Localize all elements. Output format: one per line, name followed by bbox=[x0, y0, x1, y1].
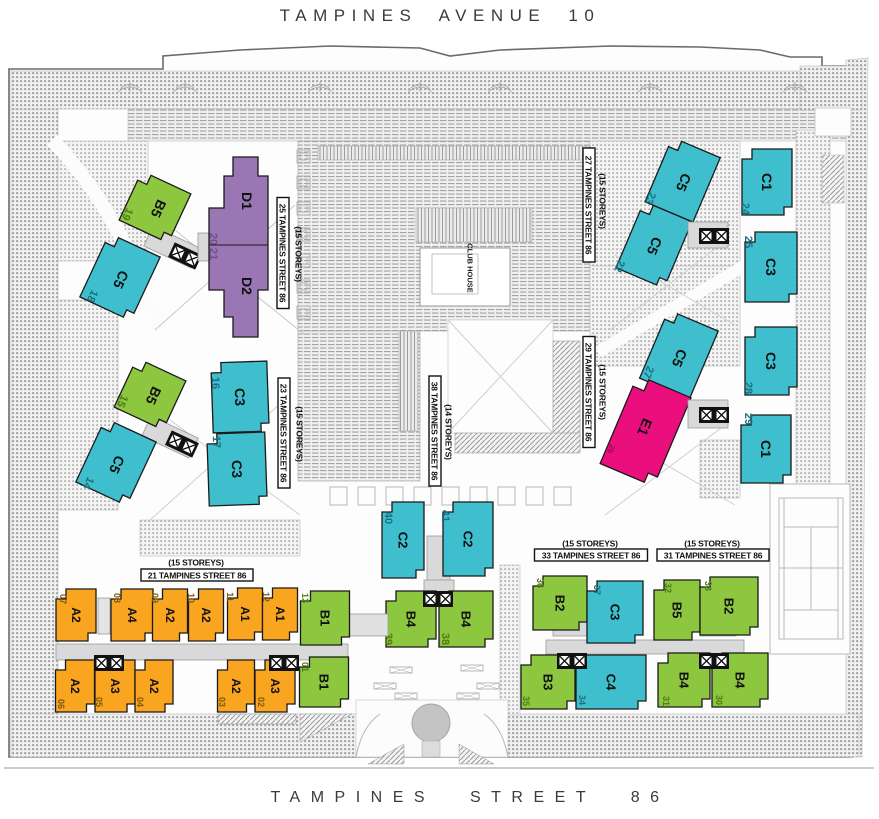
svg-text:41: 41 bbox=[439, 510, 451, 522]
svg-text:(15 STOREYS): (15 STOREYS) bbox=[295, 406, 305, 462]
svg-text:20: 20 bbox=[207, 233, 219, 245]
svg-text:25: 25 bbox=[742, 236, 754, 248]
svg-text:(15 STOREYS): (15 STOREYS) bbox=[294, 226, 304, 282]
svg-text:(15 STOREYS): (15 STOREYS) bbox=[598, 364, 608, 420]
svg-text:D1: D1 bbox=[239, 192, 255, 210]
svg-text:C3: C3 bbox=[229, 460, 246, 479]
svg-text:C1: C1 bbox=[758, 440, 774, 458]
svg-text:B2: B2 bbox=[553, 595, 568, 612]
svg-text:28: 28 bbox=[742, 382, 754, 394]
svg-text:30: 30 bbox=[714, 695, 724, 705]
svg-text:C3: C3 bbox=[608, 604, 623, 621]
svg-text:C3: C3 bbox=[763, 352, 779, 370]
svg-text:C2: C2 bbox=[396, 532, 411, 549]
svg-text:16: 16 bbox=[209, 377, 221, 390]
svg-text:TAMPINES STREET 86: TAMPINES STREET 86 bbox=[270, 789, 669, 806]
svg-text:B1: B1 bbox=[318, 610, 333, 627]
svg-text:36: 36 bbox=[535, 578, 545, 588]
svg-text:(15 STOREYS): (15 STOREYS) bbox=[168, 558, 224, 568]
svg-text:B5: B5 bbox=[670, 602, 685, 619]
svg-text:13: 13 bbox=[300, 593, 310, 603]
svg-text:07: 07 bbox=[58, 594, 68, 604]
svg-text:02: 02 bbox=[256, 697, 266, 707]
svg-text:27 TAMPINES STREET 86: 27 TAMPINES STREET 86 bbox=[584, 156, 594, 255]
svg-text:33: 33 bbox=[703, 581, 713, 591]
svg-text:05: 05 bbox=[94, 697, 104, 707]
svg-text:B4: B4 bbox=[733, 672, 748, 689]
svg-text:A2: A2 bbox=[68, 678, 82, 694]
svg-text:23 TAMPINES STREET 86: 23 TAMPINES STREET 86 bbox=[279, 384, 289, 483]
svg-text:35: 35 bbox=[521, 696, 531, 706]
svg-text:21 TAMPINES STREET 86: 21 TAMPINES STREET 86 bbox=[148, 571, 247, 581]
svg-text:CLUB HOUSE: CLUB HOUSE bbox=[466, 243, 475, 293]
svg-text:29 TAMPINES STREET 86: 29 TAMPINES STREET 86 bbox=[584, 343, 594, 442]
svg-text:08: 08 bbox=[112, 593, 122, 603]
svg-text:B1: B1 bbox=[317, 674, 332, 691]
svg-text:38 TAMPINES STREET 86: 38 TAMPINES STREET 86 bbox=[430, 382, 440, 481]
svg-text:04: 04 bbox=[135, 697, 145, 707]
svg-text:(15 STOREYS): (15 STOREYS) bbox=[598, 173, 608, 229]
svg-text:B4: B4 bbox=[459, 611, 474, 628]
svg-text:40: 40 bbox=[382, 512, 394, 524]
svg-text:B3: B3 bbox=[541, 674, 556, 691]
svg-text:(15 STOREYS): (15 STOREYS) bbox=[684, 539, 740, 549]
svg-text:A4: A4 bbox=[125, 607, 139, 623]
svg-text:A2: A2 bbox=[229, 678, 243, 694]
svg-text:A2: A2 bbox=[199, 607, 213, 623]
svg-text:09: 09 bbox=[150, 593, 160, 603]
svg-text:32: 32 bbox=[663, 583, 673, 593]
svg-text:33 TAMPINES STREET 86: 33 TAMPINES STREET 86 bbox=[542, 551, 641, 561]
svg-text:D2: D2 bbox=[239, 277, 255, 295]
svg-text:A3: A3 bbox=[108, 678, 122, 694]
svg-text:A2: A2 bbox=[69, 607, 83, 623]
svg-text:31: 31 bbox=[661, 696, 671, 706]
svg-text:C1: C1 bbox=[759, 173, 775, 191]
svg-text:C3: C3 bbox=[232, 388, 249, 407]
svg-text:B4: B4 bbox=[677, 672, 692, 689]
svg-text:A1: A1 bbox=[273, 606, 287, 622]
svg-text:29: 29 bbox=[742, 413, 754, 425]
svg-text:B2: B2 bbox=[722, 598, 737, 615]
svg-text:B4: B4 bbox=[404, 611, 419, 628]
svg-text:31 TAMPINES STREET 86: 31 TAMPINES STREET 86 bbox=[664, 551, 763, 561]
svg-text:37: 37 bbox=[592, 585, 602, 595]
svg-text:(14 STOREYS): (14 STOREYS) bbox=[444, 404, 454, 460]
svg-text:TAMPINES AVENUE 10: TAMPINES AVENUE 10 bbox=[280, 6, 601, 25]
svg-text:34: 34 bbox=[577, 695, 587, 705]
svg-text:17: 17 bbox=[210, 436, 222, 449]
svg-text:(15 STOREYS): (15 STOREYS) bbox=[562, 539, 618, 549]
svg-text:A2: A2 bbox=[147, 678, 161, 694]
svg-text:06: 06 bbox=[56, 699, 66, 709]
svg-text:21: 21 bbox=[207, 248, 219, 260]
svg-text:C4: C4 bbox=[604, 674, 619, 691]
svg-text:11: 11 bbox=[225, 592, 235, 602]
svg-text:10: 10 bbox=[186, 593, 196, 603]
svg-text:25 TAMPINES STREET 86: 25 TAMPINES STREET 86 bbox=[278, 204, 288, 303]
svg-text:A1: A1 bbox=[238, 606, 252, 622]
svg-text:24: 24 bbox=[739, 203, 751, 216]
svg-text:C3: C3 bbox=[763, 258, 779, 276]
svg-text:03: 03 bbox=[217, 697, 227, 707]
svg-text:C2: C2 bbox=[461, 531, 476, 548]
svg-text:01: 01 bbox=[300, 662, 310, 672]
svg-text:A3: A3 bbox=[268, 678, 282, 694]
svg-text:A2: A2 bbox=[163, 607, 177, 623]
svg-text:38: 38 bbox=[439, 633, 451, 645]
svg-text:12: 12 bbox=[261, 592, 271, 602]
